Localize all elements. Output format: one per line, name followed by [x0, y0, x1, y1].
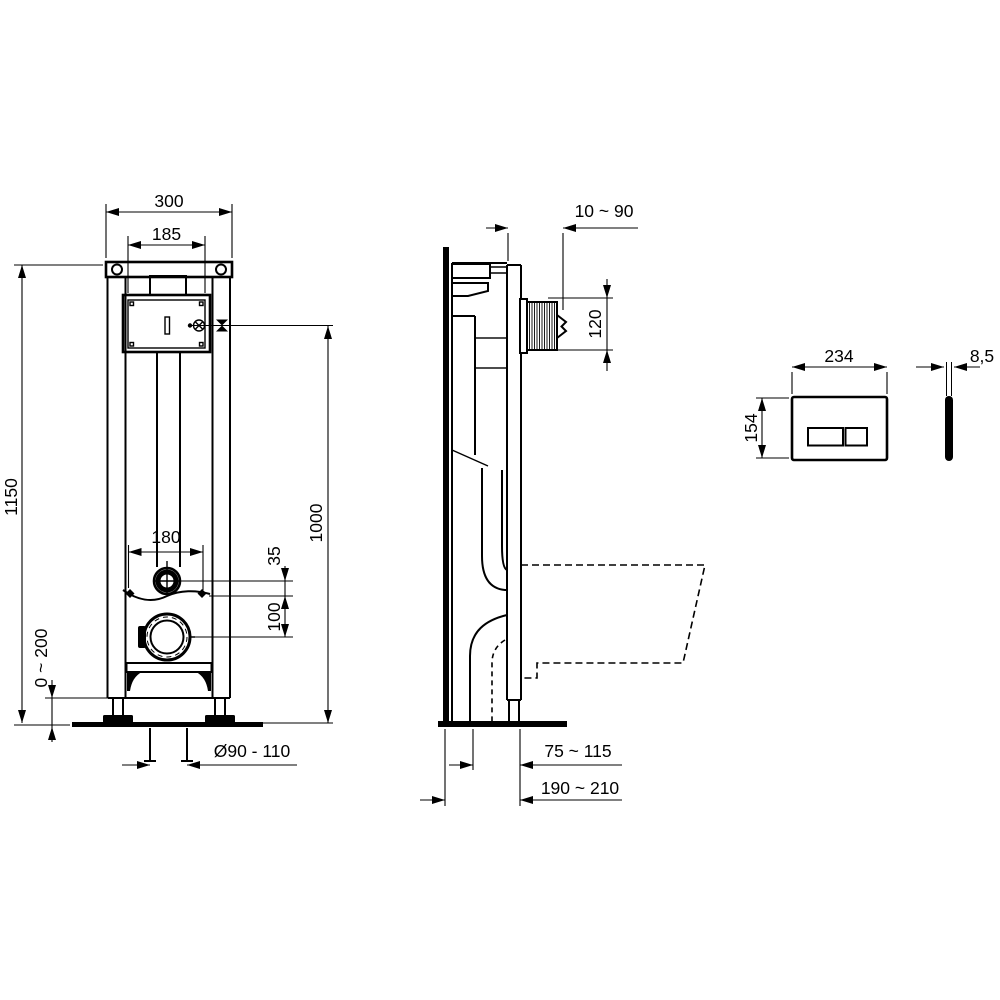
cistern-profile — [452, 316, 507, 466]
flush-bend-spigot — [520, 299, 566, 353]
dim-label-35: 35 — [264, 546, 284, 565]
dim-frame-height: 1150 — [1, 265, 103, 723]
dim-label-300: 300 — [154, 191, 183, 211]
cistern-filler-cap — [150, 276, 186, 295]
dim-label-185: 185 — [152, 224, 181, 244]
flush-bend-profile — [482, 468, 507, 590]
bowl-outline — [521, 565, 705, 678]
dim-label-1150: 1150 — [1, 478, 21, 516]
fixing-bolt-right — [198, 589, 207, 598]
wall-line — [443, 247, 449, 727]
flush-plate-side-profile — [945, 362, 953, 461]
flush-valve-housing — [475, 338, 507, 368]
wall-bracket-lower — [452, 283, 488, 296]
wall-bracket-top — [452, 264, 490, 278]
outlet-clamp — [138, 626, 146, 648]
lower-crossbar — [127, 663, 212, 672]
frame-top-plate — [106, 262, 232, 277]
side-view — [438, 247, 705, 727]
dim-label-10-90: 10 ~ 90 — [575, 201, 634, 221]
spigot-tip — [557, 315, 566, 338]
dim-reference-height: 1000 — [306, 326, 332, 723]
outlet-bend — [138, 614, 195, 661]
dim-label-8-5: 8,5 — [970, 346, 994, 366]
foot-plate-right — [205, 715, 235, 723]
flush-button-small — [846, 428, 868, 446]
dim-label-120: 120 — [585, 309, 605, 338]
mounting-hole-left — [112, 265, 122, 275]
dim-plate-height: 154 — [741, 398, 789, 458]
frame-front-plate — [507, 265, 521, 722]
dim-label-0-200: 0 ~ 200 — [31, 628, 51, 687]
dim-cistern-width: 185 — [128, 224, 205, 293]
floor-line-side — [438, 721, 567, 727]
outlet-pipe-stub — [144, 728, 193, 761]
flush-plate-view: 234 154 8,5 — [741, 346, 994, 461]
dim-plate-width: 234 — [792, 346, 887, 394]
floor-line-front — [72, 722, 263, 727]
dim-outlet-diameter: Ø90 - 110 — [122, 741, 297, 769]
dim-label-180: 180 — [151, 527, 180, 547]
corner-gusset-left — [127, 672, 142, 691]
panel-corner-screws — [130, 302, 203, 346]
dim-label-100: 100 — [264, 602, 284, 631]
adjustable-legs — [103, 698, 235, 723]
mounting-hole-right — [216, 265, 226, 275]
hidden-drain-line — [492, 640, 505, 722]
dim-label-1000: 1000 — [306, 503, 326, 542]
technical-drawing-page: 300 185 1150 0 ~ 200 — [0, 0, 1000, 1000]
dim-wall-clearance: 10 ~ 90 — [486, 201, 638, 310]
front-view — [14, 262, 333, 761]
corner-gusset-right — [196, 672, 211, 691]
dim-plate-thickness: 8,5 — [916, 346, 994, 371]
flush-button-large — [808, 428, 843, 446]
dim-label-190-210: 190 ~ 210 — [541, 778, 620, 798]
outlet-bend-profile — [470, 615, 507, 722]
dim-label-154: 154 — [741, 413, 761, 442]
dim-label-outlet-diameter: Ø90 - 110 — [214, 741, 291, 761]
access-panel-slot — [165, 317, 170, 334]
installation-drawing: 300 185 1150 0 ~ 200 — [0, 0, 1000, 1000]
dim-label-75-115: 75 ~ 115 — [544, 741, 611, 761]
dim-label-234: 234 — [824, 346, 853, 366]
foot-plate-left — [103, 715, 133, 723]
